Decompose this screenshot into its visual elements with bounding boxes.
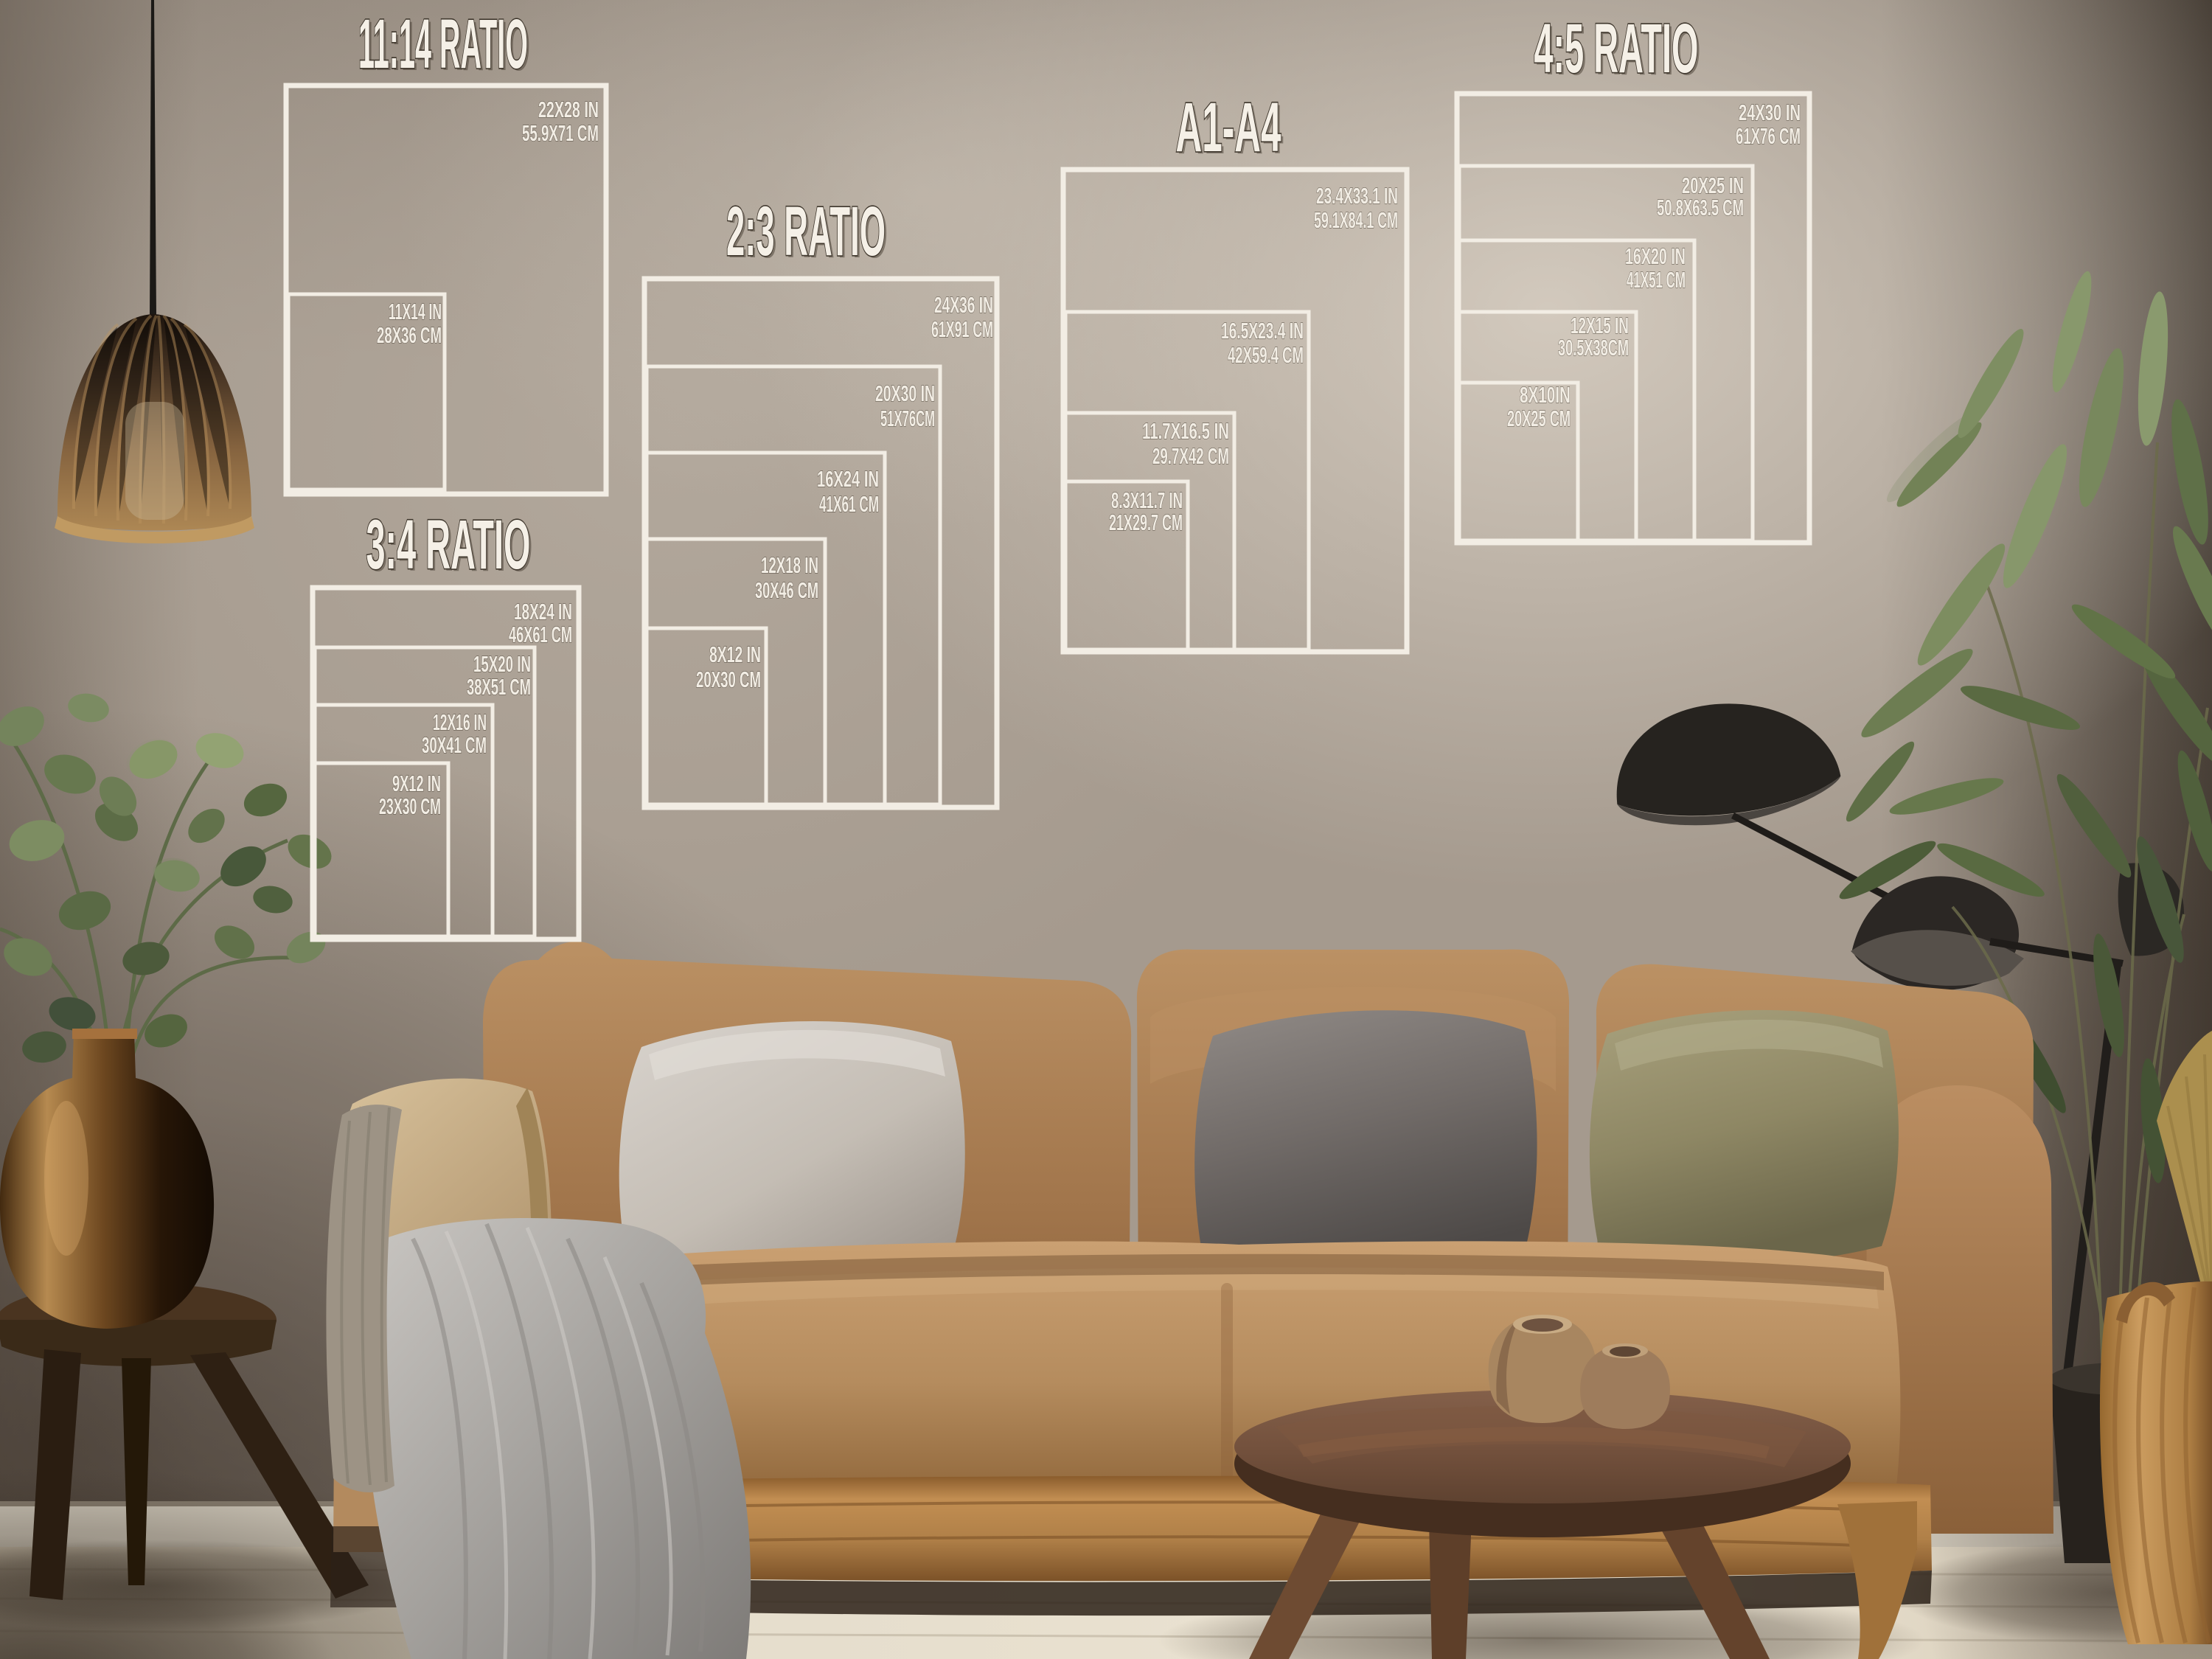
svg-text:55.9X71 CM: 55.9X71 CM [522,120,599,146]
svg-text:46X61 CM: 46X61 CM [509,622,572,647]
svg-text:12X18 IN: 12X18 IN [761,552,818,578]
svg-text:24X30 IN: 24X30 IN [1739,100,1801,125]
svg-text:8X10IN: 8X10IN [1520,382,1571,408]
svg-text:23.4X33.1 IN: 23.4X33.1 IN [1316,183,1398,209]
svg-text:51X76CM: 51X76CM [880,406,935,431]
svg-text:59.1X84.1 CM: 59.1X84.1 CM [1314,207,1398,233]
svg-text:38X51 CM: 38X51 CM [467,674,531,700]
svg-text:21X29.7 CM: 21X29.7 CM [1109,509,1183,535]
svg-text:42X59.4 CM: 42X59.4 CM [1228,342,1304,368]
svg-text:20X30 CM: 20X30 CM [696,667,761,692]
svg-text:15X20 IN: 15X20 IN [473,651,531,677]
svg-text:30X46 CM: 30X46 CM [755,577,818,603]
svg-text:11:14 RATIO: 11:14 RATIO [358,5,528,83]
svg-text:61X91 CM: 61X91 CM [931,316,993,342]
svg-text:11.7X16.5 IN: 11.7X16.5 IN [1142,418,1229,444]
svg-text:41X51 CM: 41X51 CM [1627,267,1686,293]
svg-text:22X28 IN: 22X28 IN [538,97,599,122]
svg-text:9X12 IN: 9X12 IN [392,771,441,796]
svg-text:16X20 IN: 16X20 IN [1625,243,1686,269]
svg-text:28X36 CM: 28X36 CM [377,322,442,348]
svg-text:2:3 RATIO: 2:3 RATIO [726,192,886,271]
svg-text:30X41 CM: 30X41 CM [422,732,487,758]
svg-text:30.5X38CM: 30.5X38CM [1558,335,1629,361]
svg-text:16X24 IN: 16X24 IN [817,466,879,492]
svg-text:16.5X23.4 IN: 16.5X23.4 IN [1221,318,1304,344]
svg-text:20X25 CM: 20X25 CM [1507,406,1571,431]
svg-text:12X16 IN: 12X16 IN [433,709,487,735]
svg-text:11X14 IN: 11X14 IN [389,299,442,324]
svg-text:61X76 CM: 61X76 CM [1736,123,1801,149]
svg-text:24X36 IN: 24X36 IN [934,292,993,318]
svg-text:29.7X42 CM: 29.7X42 CM [1152,443,1229,469]
svg-text:20X30 IN: 20X30 IN [875,380,935,406]
svg-text:41X61 CM: 41X61 CM [819,491,879,517]
svg-text:23X30 CM: 23X30 CM [379,793,441,819]
svg-text:50.8X63.5 CM: 50.8X63.5 CM [1657,195,1744,220]
svg-text:8X12 IN: 8X12 IN [709,641,761,667]
svg-text:4:5 RATIO: 4:5 RATIO [1534,10,1699,88]
svg-text:3:4 RATIO: 3:4 RATIO [366,506,531,584]
svg-text:18X24 IN: 18X24 IN [514,599,572,625]
svg-text:A1-A4: A1-A4 [1176,88,1281,167]
